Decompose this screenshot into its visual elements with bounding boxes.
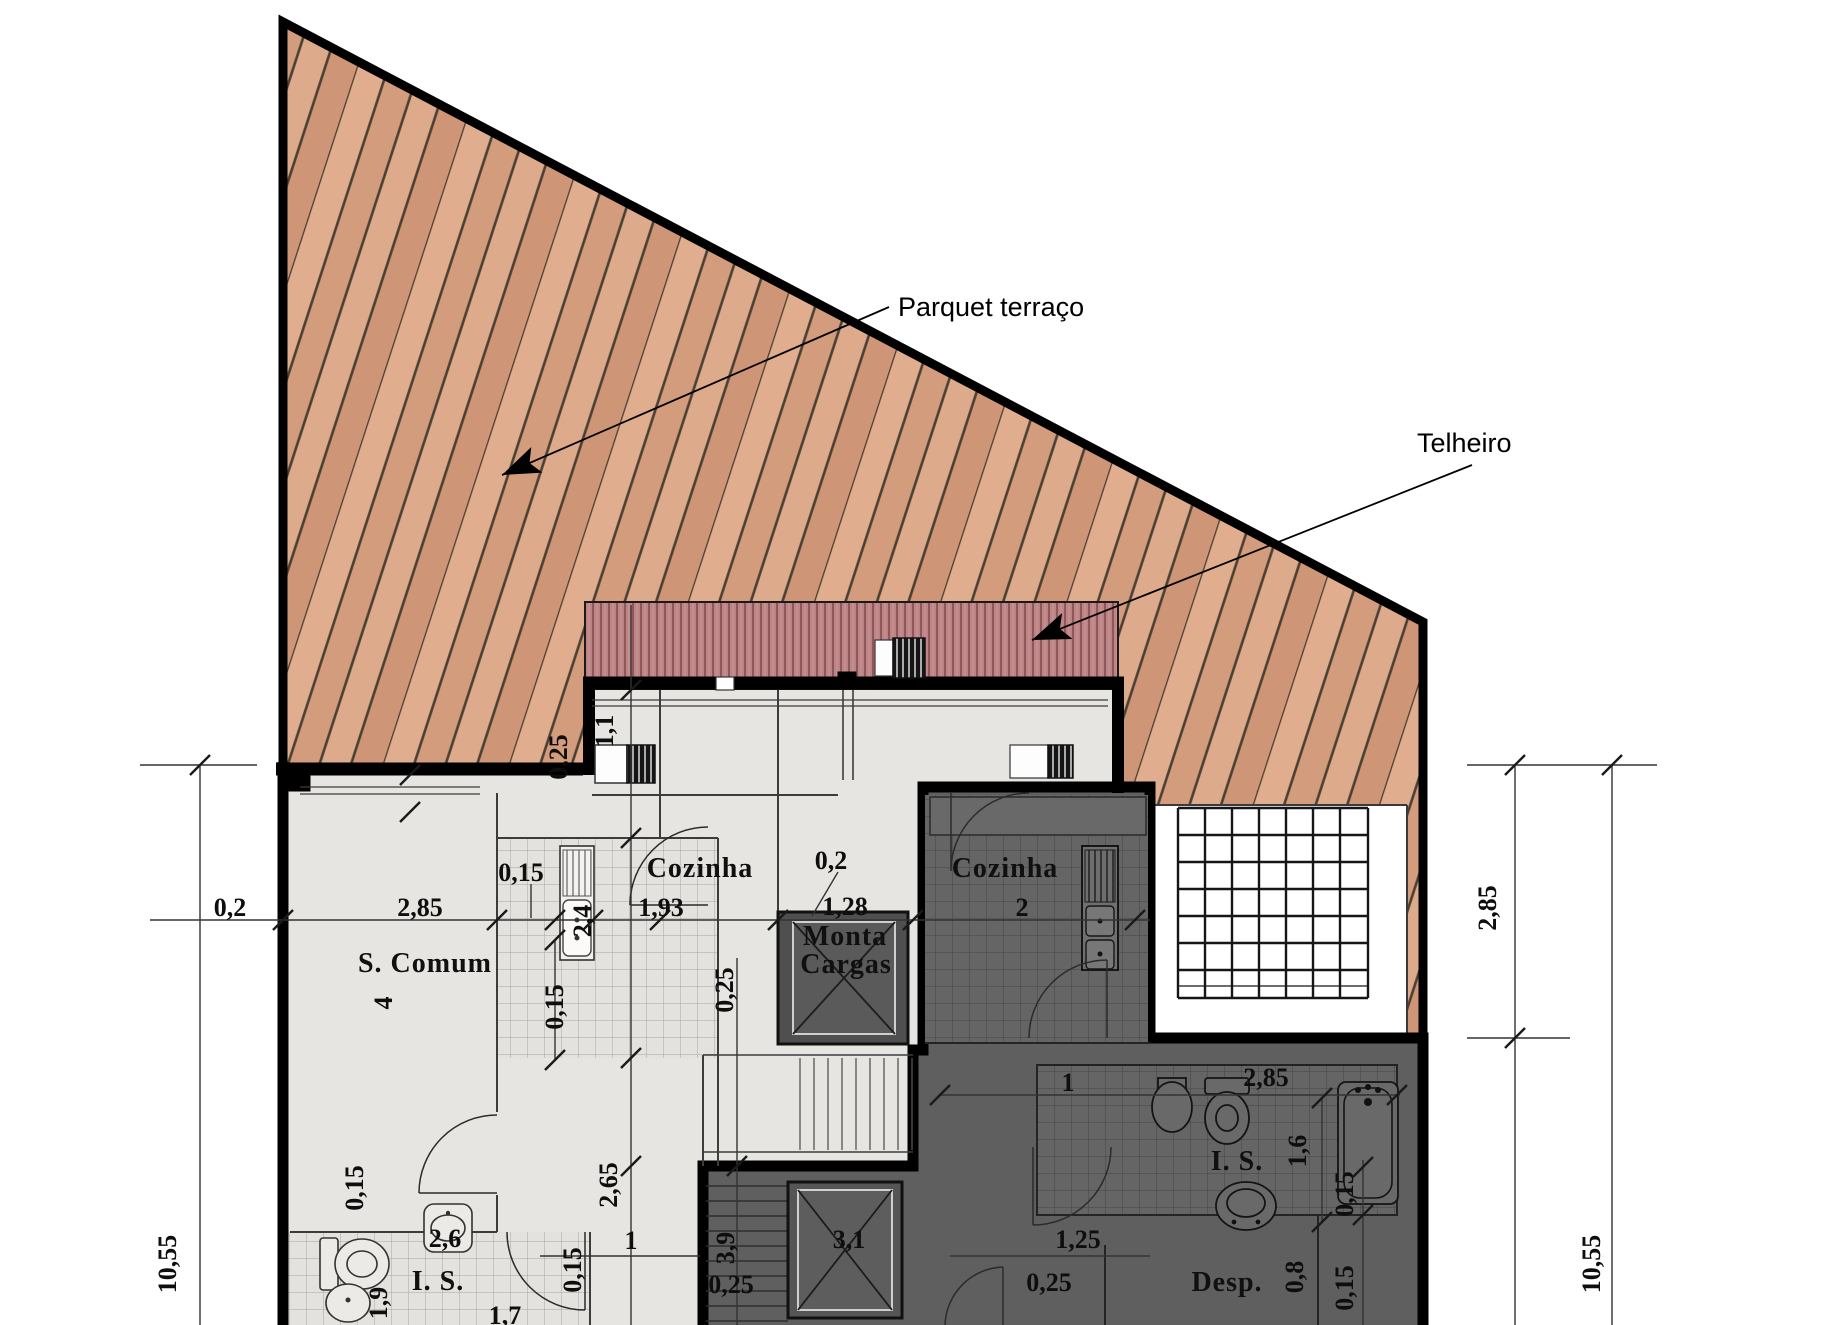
dimension-label: 1,6 bbox=[1283, 1135, 1312, 1168]
dimension-label: 2,85 bbox=[397, 893, 443, 922]
dimension-label: 0,15 bbox=[340, 1165, 369, 1211]
dimension-label: 1,7 bbox=[489, 1301, 522, 1325]
dimension-label: 1,28 bbox=[822, 892, 868, 921]
dimension-label: 0,15 bbox=[558, 1247, 587, 1293]
dimension-label: 2,85 bbox=[1243, 1063, 1289, 1092]
dimension-label: 0,2 bbox=[214, 893, 247, 922]
dimension-label: 10,55 bbox=[153, 1235, 182, 1294]
counter-unit bbox=[595, 745, 627, 783]
room-label: Cozinha bbox=[647, 853, 754, 884]
stove-icon bbox=[1048, 745, 1073, 778]
dimension-label: 0,25 bbox=[710, 967, 739, 1013]
dimension-label: 0,15 bbox=[1330, 1171, 1359, 1217]
dimension-label: 1,25 bbox=[1055, 1225, 1101, 1254]
dimension-label: 2 bbox=[1016, 893, 1029, 922]
room-label: Desp. bbox=[1191, 1267, 1262, 1298]
pergola-patio bbox=[1150, 805, 1407, 1038]
room-label: S. Comum bbox=[358, 948, 492, 979]
floor-plan-page: 0,22,850,151,930,21,28212,851,250,2510,2… bbox=[0, 0, 1842, 1325]
room-label: Monta bbox=[803, 921, 887, 952]
dimension-label: 2,65 bbox=[594, 1162, 623, 1208]
wall-pillar bbox=[284, 775, 310, 791]
dimension-label: 2,4 bbox=[568, 905, 597, 938]
annotation-label: Parquet terraço bbox=[898, 292, 1084, 322]
dimension-label: 0,25 bbox=[1026, 1268, 1072, 1297]
dimension-label: 0,25 bbox=[544, 734, 573, 780]
dimension-label: 1 bbox=[625, 1226, 638, 1255]
room-label: I. S. bbox=[1211, 1146, 1263, 1177]
dimension-label: 1,1 bbox=[590, 715, 619, 748]
dimension-label: 0,8 bbox=[1280, 1261, 1309, 1294]
room-label: Cargas bbox=[800, 949, 892, 980]
counter-unit bbox=[875, 640, 893, 676]
dimension-label: 1,9 bbox=[364, 1287, 393, 1320]
dimension-label: 1,93 bbox=[638, 893, 684, 922]
kitchen1-sink bbox=[560, 846, 594, 960]
floor-plan-drawing: 0,22,850,151,930,21,28212,851,250,2510,2… bbox=[0, 0, 1842, 1325]
dimension-label: 2,6 bbox=[429, 1224, 462, 1253]
dimension-label: 0,15 bbox=[498, 858, 544, 887]
counter-unit bbox=[1010, 745, 1048, 778]
stove-icon bbox=[893, 638, 925, 678]
dimension-label: 0,2 bbox=[815, 846, 848, 875]
door-hinge-block bbox=[838, 672, 856, 686]
kitchen2-sink bbox=[1082, 846, 1118, 970]
dimension-label: 3,1 bbox=[833, 1225, 866, 1254]
room-label: Cozinha bbox=[952, 853, 1059, 884]
dimension-label: 10,55 bbox=[1577, 1235, 1606, 1294]
dimension-label: 0,25 bbox=[708, 1270, 754, 1299]
bidet-icon bbox=[1152, 1082, 1192, 1132]
dimension-label: 4 bbox=[369, 997, 398, 1010]
dimension-label: 0,15 bbox=[540, 984, 569, 1030]
dimension-label: 3,9 bbox=[711, 1232, 740, 1265]
annotation-label: Telheiro bbox=[1417, 428, 1512, 458]
room-label: I. S. bbox=[412, 1266, 464, 1297]
dimension-label: 2,85 bbox=[1473, 885, 1502, 931]
dimension-label: 1 bbox=[1062, 1068, 1075, 1097]
wall-vent bbox=[716, 677, 734, 690]
dimension-label: 0,15 bbox=[1330, 1265, 1359, 1311]
